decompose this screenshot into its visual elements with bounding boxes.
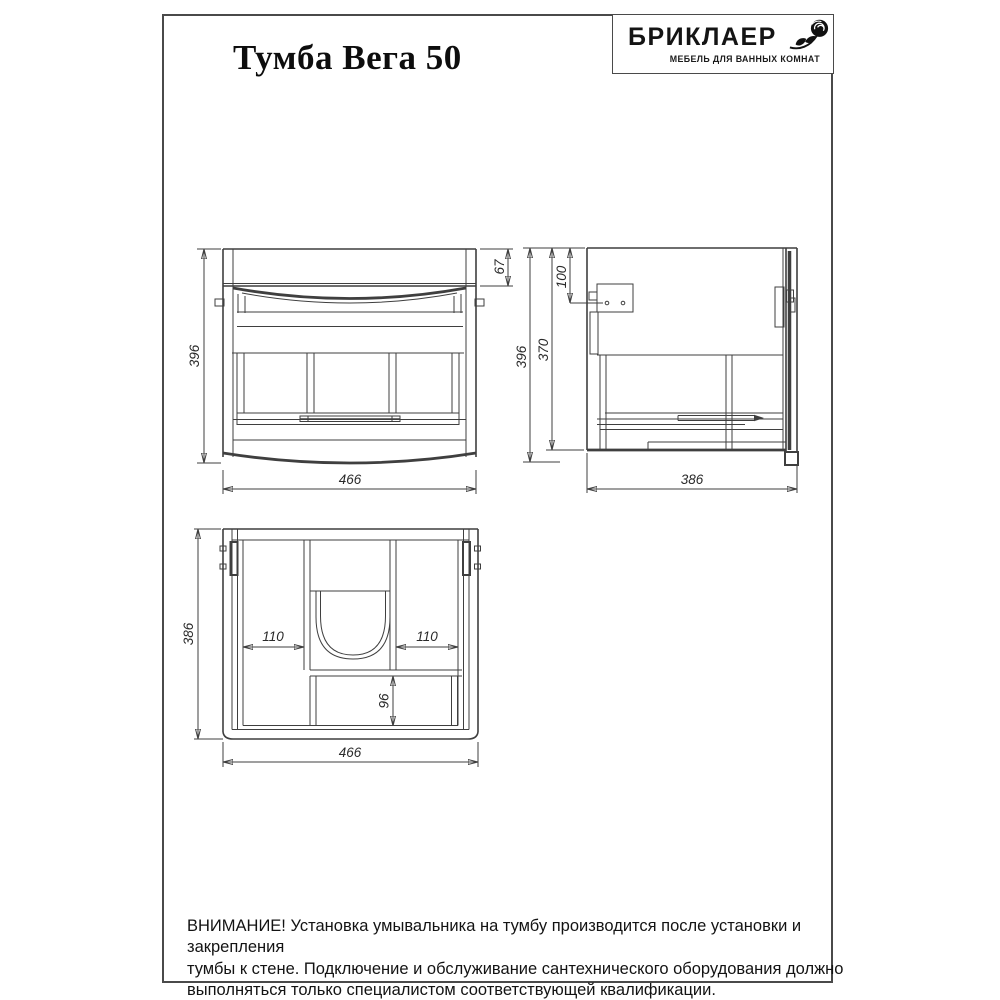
front-top-rail-dim-label: 67: [492, 259, 507, 275]
top-width-dim-label: 466: [339, 745, 362, 760]
warning-line: тумбы к стене. Подключение и обслуживани…: [187, 959, 847, 980]
top-right-section-dim-label: 110: [416, 629, 438, 644]
side-view-dimensions: 396 370 100 386: [514, 248, 797, 493]
spec-sheet-page: Тумба Вега 50 БРИКЛАЕР МЕБЕЛЬ ДЛЯ ВАННЫХ…: [0, 0, 1000, 1000]
technical-drawing: 396 67 466: [0, 0, 1000, 1000]
side-view: [587, 248, 798, 465]
warning-line: ВНИМАНИЕ! Установка умывальника на тумбу…: [187, 916, 847, 959]
front-view: [215, 249, 484, 463]
side-body-height-dim-label: 370: [536, 338, 551, 361]
side-height-dim-label: 396: [514, 345, 529, 368]
warning-line: выполняться только специалистом соответс…: [187, 980, 847, 1000]
top-left-section-dim-label: 110: [262, 629, 284, 644]
side-depth-dim-label: 386: [681, 472, 704, 487]
side-mount-offset-dim-label: 100: [554, 265, 569, 288]
warning-text: ВНИМАНИЕ! Установка умывальника на тумбу…: [187, 916, 847, 1000]
front-width-dim-label: 466: [339, 472, 362, 487]
front-height-dim-label: 396: [187, 344, 202, 367]
top-view: [220, 529, 481, 739]
top-back-section-dim-label: 96: [377, 693, 392, 709]
top-depth-dim-label: 386: [181, 622, 196, 645]
